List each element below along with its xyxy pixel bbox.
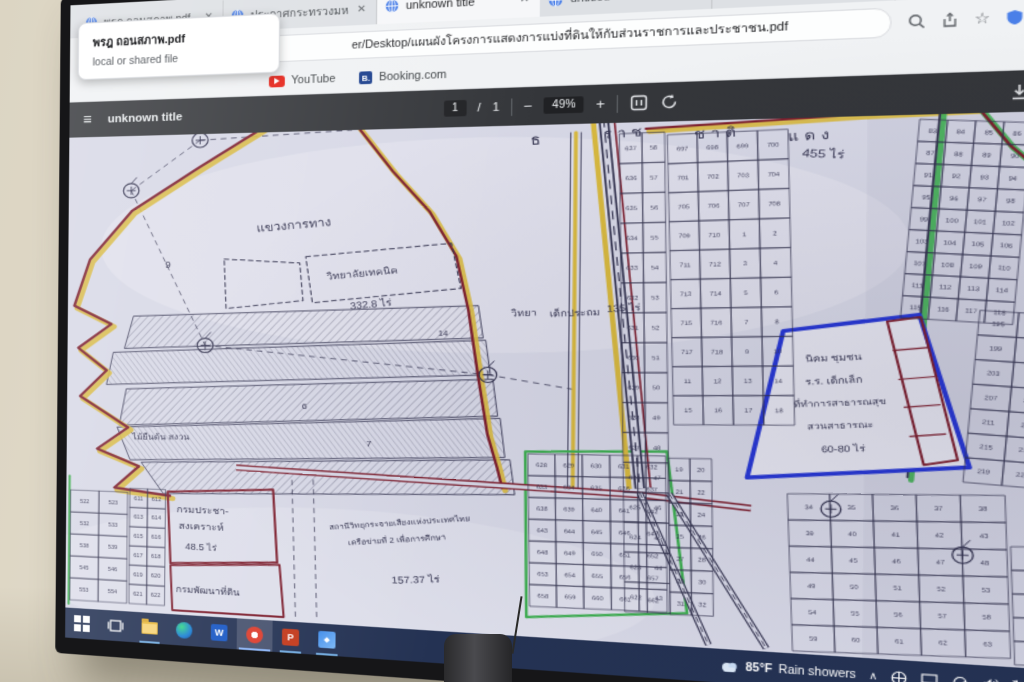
svg-text:87: 87 — [926, 150, 935, 157]
svg-text:55: 55 — [851, 611, 859, 618]
svg-text:101: 101 — [973, 219, 987, 226]
map-label: 157.37 ไร่ — [391, 573, 440, 585]
svg-text:629: 629 — [628, 385, 640, 391]
svg-text:22: 22 — [697, 490, 705, 497]
powerpoint-button[interactable]: P — [272, 621, 308, 655]
map-label: ชาติ — [694, 124, 742, 142]
svg-text:630: 630 — [627, 355, 639, 361]
svg-text:32: 32 — [698, 602, 706, 609]
hidden-icons-chevron[interactable]: ∧ — [869, 669, 878, 682]
svg-text:43: 43 — [979, 533, 988, 540]
svg-text:92: 92 — [952, 174, 961, 181]
svg-text:199: 199 — [989, 346, 1003, 354]
svg-text:701: 701 — [677, 175, 689, 182]
svg-text:19: 19 — [675, 467, 683, 474]
svg-text:61: 61 — [895, 639, 904, 646]
svg-text:46: 46 — [892, 559, 901, 566]
svg-text:546: 546 — [108, 567, 118, 573]
bookmark-label: Booking.com — [379, 68, 447, 83]
svg-text:640: 640 — [591, 508, 602, 515]
svg-text:89: 89 — [982, 152, 991, 159]
svg-text:44: 44 — [806, 557, 814, 564]
network-globe-icon[interactable] — [891, 669, 908, 682]
svg-text:656: 656 — [619, 575, 631, 582]
svg-text:631: 631 — [627, 325, 639, 331]
svg-text:47: 47 — [936, 560, 945, 567]
svg-text:545: 545 — [79, 565, 88, 571]
tab-title: unknown title — [406, 0, 511, 12]
svg-text:632: 632 — [646, 465, 658, 472]
svg-text:13: 13 — [744, 379, 752, 386]
language-indicator[interactable]: ไทย — [1014, 677, 1024, 682]
svg-text:710: 710 — [708, 232, 720, 239]
svg-text:93: 93 — [980, 175, 989, 182]
svg-text:11: 11 — [684, 379, 691, 385]
svg-text:634: 634 — [563, 485, 574, 492]
svg-text:713: 713 — [680, 292, 692, 299]
svg-text:58: 58 — [649, 145, 657, 152]
svg-text:699: 699 — [736, 143, 748, 150]
fit-page-icon[interactable] — [630, 94, 648, 111]
rotate-icon[interactable] — [660, 93, 678, 110]
svg-text:56: 56 — [894, 612, 903, 619]
photos-icon: ◆ — [318, 631, 335, 649]
svg-text:39: 39 — [806, 531, 814, 538]
svg-text:207: 207 — [984, 395, 998, 403]
svg-text:49: 49 — [653, 415, 661, 422]
svg-text:50: 50 — [850, 584, 858, 591]
map-label: เด็กประถม — [549, 305, 600, 319]
svg-text:215: 215 — [979, 444, 993, 452]
svg-text:703: 703 — [737, 173, 749, 180]
svg-text:613: 613 — [134, 515, 144, 521]
powerpoint-icon: P — [282, 628, 299, 646]
volume-icon[interactable] — [982, 677, 1000, 682]
tab-hover-card: พรฎ ถอนสภาพ.pdf local or shared file — [78, 13, 280, 80]
tab-hover-subtitle: local or shared file — [93, 49, 264, 68]
svg-text:83: 83 — [928, 128, 937, 135]
svg-text:704: 704 — [768, 172, 780, 179]
svg-text:5: 5 — [744, 290, 748, 297]
file-explorer-button[interactable] — [132, 612, 167, 645]
svg-text:648: 648 — [537, 550, 548, 557]
address-text: er/Desktop/แผนผังโครงการแสดงการแบ่งที่ดิ… — [352, 17, 788, 54]
map-label: ธ — [530, 132, 541, 148]
svg-text:84: 84 — [956, 129, 965, 136]
download-icon[interactable] — [1010, 83, 1024, 100]
svg-text:614: 614 — [151, 516, 161, 522]
svg-text:16: 16 — [714, 408, 722, 415]
svg-text:9: 9 — [745, 349, 749, 356]
svg-text:629: 629 — [563, 463, 574, 470]
svg-text:26: 26 — [698, 535, 706, 542]
svg-text:641: 641 — [618, 508, 630, 515]
svg-text:625: 625 — [629, 505, 641, 512]
map-label: 7 — [366, 439, 372, 449]
tab-close-icon[interactable]: ✕ — [355, 3, 369, 15]
svg-text:644: 644 — [564, 529, 575, 536]
svg-text:647: 647 — [647, 531, 659, 538]
svg-text:29: 29 — [677, 579, 685, 586]
bookmark-youtube[interactable]: YouTube — [269, 73, 336, 88]
svg-text:21: 21 — [675, 490, 683, 497]
svg-text:51: 51 — [652, 355, 660, 361]
svg-text:104: 104 — [943, 240, 956, 247]
svg-text:522: 522 — [80, 499, 89, 505]
svg-text:112: 112 — [939, 284, 952, 291]
display-tray-icon[interactable] — [921, 673, 938, 682]
svg-text:49: 49 — [807, 583, 815, 590]
svg-text:635: 635 — [591, 486, 602, 493]
map-label: 48.5 ไร่ — [185, 542, 217, 553]
svg-text:28: 28 — [698, 557, 706, 564]
stand-pole — [444, 634, 512, 682]
svg-text:56: 56 — [650, 205, 658, 212]
svg-text:15: 15 — [684, 408, 692, 414]
windows-desktop: พรฎ ถอนสภาพ.pdf✕ประกาศกระทรวงมหาดไทยเรื่… — [65, 0, 1024, 682]
svg-text:115: 115 — [909, 305, 922, 312]
svg-text:633: 633 — [626, 266, 638, 273]
svg-text:711: 711 — [679, 262, 690, 269]
tv-display: พรฎ ถอนสภาพ.pdf✕ประกาศกระทรวงมหาดไทยเรื่… — [55, 0, 1024, 682]
svg-text:57: 57 — [938, 613, 947, 620]
svg-text:626: 626 — [629, 475, 641, 482]
svg-text:1: 1 — [742, 232, 746, 239]
sync-tray-icon[interactable] — [952, 675, 970, 682]
svg-text:523: 523 — [108, 500, 118, 506]
svg-text:611: 611 — [134, 496, 143, 502]
word-icon: W — [211, 624, 228, 642]
svg-text:712: 712 — [709, 262, 721, 269]
search-icon[interactable] — [908, 12, 927, 29]
booking-icon: B. — [359, 71, 372, 84]
svg-text:615: 615 — [133, 534, 143, 540]
svg-text:18: 18 — [775, 408, 783, 415]
svg-text:718: 718 — [711, 349, 723, 356]
svg-text:54: 54 — [651, 265, 659, 272]
word-button[interactable]: W — [201, 616, 236, 649]
svg-text:51: 51 — [893, 585, 902, 592]
svg-text:109: 109 — [969, 264, 983, 271]
svg-text:702: 702 — [707, 174, 719, 181]
globe-favicon-icon — [548, 0, 563, 7]
svg-text:24: 24 — [697, 512, 705, 519]
pdf-title: unknown title — [108, 111, 183, 125]
svg-text:48: 48 — [653, 446, 661, 453]
map-label: ไม้ยืนต้น สงวน — [131, 432, 190, 442]
svg-text:659: 659 — [564, 595, 575, 602]
svg-text:717: 717 — [681, 350, 693, 357]
svg-text:55: 55 — [651, 235, 659, 242]
task-view-icon — [108, 618, 124, 633]
divider — [617, 95, 618, 113]
tab-close-icon[interactable]: ✕ — [517, 0, 531, 6]
map-label: ราช — [603, 124, 648, 142]
weather-cloud-icon — [719, 659, 739, 674]
svg-text:58: 58 — [982, 615, 991, 622]
svg-text:36: 36 — [890, 505, 899, 512]
svg-text:95: 95 — [921, 195, 930, 202]
svg-text:637: 637 — [646, 487, 658, 494]
svg-text:111: 111 — [911, 283, 923, 290]
svg-text:638: 638 — [536, 506, 547, 513]
svg-text:623: 623 — [630, 565, 642, 572]
svg-text:554: 554 — [108, 589, 118, 595]
svg-text:716: 716 — [710, 320, 722, 327]
svg-text:617: 617 — [133, 554, 143, 560]
svg-text:216: 216 — [1018, 447, 1024, 455]
svg-text:53: 53 — [651, 295, 659, 302]
windows-logo-icon — [74, 615, 89, 632]
svg-text:650: 650 — [591, 552, 602, 559]
pdf-page-zoom-controls: 1 / 1 − 49% + — [444, 93, 678, 118]
svg-text:50: 50 — [652, 385, 660, 391]
svg-text:628: 628 — [628, 415, 640, 422]
svg-text:634: 634 — [626, 236, 638, 243]
svg-text:637: 637 — [625, 146, 637, 153]
svg-text:34: 34 — [805, 505, 813, 512]
edge-button[interactable] — [167, 614, 202, 647]
file-explorer-icon — [142, 621, 158, 634]
svg-text:195: 195 — [991, 321, 1005, 329]
svg-text:700: 700 — [767, 142, 779, 149]
svg-text:52: 52 — [652, 325, 660, 331]
svg-text:655: 655 — [592, 574, 603, 581]
svg-text:30: 30 — [698, 580, 706, 587]
svg-text:2: 2 — [773, 231, 777, 238]
svg-text:38: 38 — [979, 506, 988, 513]
svg-text:85: 85 — [984, 130, 993, 137]
svg-text:212: 212 — [1020, 423, 1024, 431]
map-label: สวนสาธารณะ — [807, 420, 874, 432]
zoom-out-button[interactable]: − — [524, 98, 533, 115]
svg-text:211: 211 — [982, 420, 995, 428]
svg-text:662: 662 — [647, 598, 659, 605]
page-count: 1 — [492, 101, 499, 114]
svg-text:105: 105 — [971, 241, 985, 248]
svg-text:628: 628 — [536, 463, 547, 470]
svg-text:714: 714 — [710, 291, 722, 298]
svg-text:40: 40 — [848, 532, 856, 539]
svg-text:54: 54 — [808, 610, 816, 617]
weather-temp: 85°F — [745, 661, 772, 675]
bookmark-booking[interactable]: B. Booking.com — [359, 68, 446, 84]
svg-text:220: 220 — [1016, 472, 1024, 480]
chrome-button[interactable] — [237, 618, 273, 651]
globe-favicon-icon — [385, 0, 399, 13]
svg-text:643: 643 — [537, 528, 548, 535]
svg-text:96: 96 — [949, 196, 958, 203]
svg-text:622: 622 — [151, 593, 161, 599]
svg-text:62: 62 — [939, 640, 948, 647]
chrome-icon — [246, 626, 263, 644]
svg-text:612: 612 — [152, 497, 162, 503]
divider — [511, 98, 512, 115]
cadastral-map-svg: 6375863657635566345563354632536315263051… — [65, 108, 1024, 675]
svg-text:100: 100 — [945, 218, 958, 225]
svg-text:651: 651 — [619, 553, 631, 560]
svg-text:553: 553 — [79, 587, 88, 593]
svg-text:709: 709 — [678, 233, 690, 240]
svg-text:619: 619 — [133, 573, 143, 579]
svg-text:654: 654 — [564, 573, 575, 580]
weather-condition: Rain showers — [778, 663, 856, 681]
svg-text:715: 715 — [680, 321, 692, 328]
bookmark-star-icon[interactable]: ☆ — [974, 8, 990, 28]
svg-text:652: 652 — [647, 553, 659, 560]
svg-text:31: 31 — [677, 601, 685, 608]
svg-text:219: 219 — [977, 469, 991, 477]
svg-text:48: 48 — [980, 560, 989, 567]
svg-text:639: 639 — [563, 507, 574, 514]
svg-text:113: 113 — [967, 286, 980, 293]
map-label: 9 — [165, 260, 171, 270]
svg-text:35: 35 — [847, 505, 855, 512]
photos-button[interactable]: ◆ — [309, 623, 346, 657]
svg-text:658: 658 — [537, 593, 548, 600]
svg-text:94: 94 — [1008, 176, 1017, 183]
svg-text:102: 102 — [1001, 220, 1015, 227]
extension-shield-icon[interactable] — [1005, 8, 1024, 25]
map-label: 60-80 ไร่ — [821, 443, 867, 455]
svg-text:42: 42 — [935, 533, 944, 540]
svg-text:91: 91 — [924, 172, 933, 179]
svg-text:646: 646 — [619, 530, 631, 537]
tab-hover-title: พรฎ ถอนสภาพ.pdf — [93, 25, 264, 51]
svg-text:59: 59 — [809, 636, 817, 643]
svg-text:635: 635 — [626, 206, 638, 213]
page-separator: / — [477, 101, 481, 114]
svg-text:8: 8 — [775, 319, 779, 326]
svg-text:90: 90 — [1010, 153, 1019, 160]
svg-text:52: 52 — [937, 586, 946, 593]
svg-text:47: 47 — [653, 476, 661, 483]
svg-text:636: 636 — [618, 486, 630, 493]
svg-text:661: 661 — [619, 597, 631, 604]
svg-text:110: 110 — [997, 265, 1010, 272]
svg-text:697: 697 — [677, 146, 689, 153]
svg-text:107: 107 — [913, 261, 926, 268]
svg-text:705: 705 — [678, 204, 690, 211]
zoom-in-button[interactable]: + — [596, 96, 605, 113]
svg-text:627: 627 — [628, 445, 640, 452]
bookmark-label: YouTube — [291, 73, 335, 87]
svg-text:4: 4 — [774, 260, 778, 267]
svg-text:108: 108 — [941, 262, 954, 269]
svg-text:708: 708 — [768, 201, 780, 208]
zoom-level[interactable]: 49% — [544, 96, 584, 114]
svg-text:7: 7 — [744, 320, 748, 327]
map-label: แดง — [788, 126, 836, 144]
svg-text:60: 60 — [852, 637, 860, 644]
svg-text:63: 63 — [983, 642, 992, 649]
svg-text:645: 645 — [591, 530, 602, 537]
svg-text:88: 88 — [954, 151, 963, 158]
svg-text:633: 633 — [536, 484, 547, 491]
svg-text:532: 532 — [80, 521, 89, 527]
svg-text:12: 12 — [713, 379, 721, 386]
youtube-icon — [269, 75, 285, 87]
map-label: สงเคราะห์ — [179, 520, 224, 533]
svg-text:99: 99 — [919, 217, 928, 224]
svg-text:23: 23 — [676, 512, 684, 519]
svg-text:27: 27 — [676, 557, 684, 564]
svg-text:622: 622 — [630, 595, 642, 602]
svg-text:657: 657 — [647, 576, 659, 583]
share-icon[interactable] — [941, 11, 960, 28]
svg-text:630: 630 — [590, 464, 601, 471]
svg-text:14: 14 — [774, 378, 782, 385]
svg-text:642: 642 — [646, 509, 658, 516]
svg-text:98: 98 — [1006, 198, 1015, 205]
pdf-menu-icon[interactable]: ≡ — [83, 111, 92, 128]
svg-text:6: 6 — [774, 290, 778, 297]
svg-text:25: 25 — [676, 534, 684, 541]
svg-text:203: 203 — [986, 370, 1000, 378]
svg-text:533: 533 — [108, 522, 118, 528]
svg-text:106: 106 — [999, 243, 1013, 250]
svg-text:618: 618 — [151, 554, 161, 560]
weather-widget[interactable]: 85°F Rain showers — [719, 659, 856, 682]
svg-text:20: 20 — [697, 468, 705, 475]
pdf-action-icons: ⋮ — [1010, 78, 1024, 101]
svg-text:86: 86 — [1013, 131, 1022, 138]
svg-text:620: 620 — [151, 574, 161, 580]
svg-text:539: 539 — [108, 545, 118, 551]
edge-icon — [176, 622, 192, 639]
svg-text:37: 37 — [934, 506, 943, 513]
svg-text:57: 57 — [650, 175, 658, 182]
svg-text:117: 117 — [965, 308, 978, 315]
svg-text:653: 653 — [537, 572, 548, 579]
svg-text:636: 636 — [625, 176, 637, 183]
page-number-input[interactable]: 1 — [444, 100, 466, 117]
svg-text:538: 538 — [80, 543, 89, 549]
svg-text:116: 116 — [937, 306, 950, 313]
map-label: 6 — [302, 401, 308, 411]
svg-text:621: 621 — [133, 592, 143, 598]
svg-text:660: 660 — [592, 596, 603, 603]
svg-text:41: 41 — [891, 532, 900, 539]
svg-text:3: 3 — [743, 261, 747, 268]
svg-text:631: 631 — [618, 464, 630, 471]
svg-text:45: 45 — [849, 558, 857, 565]
svg-text:53: 53 — [981, 587, 990, 594]
start-button[interactable] — [65, 607, 99, 639]
task-view-button[interactable] — [99, 610, 133, 643]
map-label: 14 — [438, 328, 448, 337]
svg-text:17: 17 — [744, 408, 752, 415]
svg-text:44: 44 — [654, 566, 662, 573]
map-label: 135 ไร่ — [607, 302, 641, 314]
svg-text:616: 616 — [151, 535, 161, 541]
svg-text:624: 624 — [629, 535, 641, 542]
svg-text:698: 698 — [706, 145, 718, 152]
svg-text:97: 97 — [977, 197, 986, 204]
svg-text:114: 114 — [995, 287, 1008, 294]
svg-text:10: 10 — [774, 349, 782, 356]
map-label: วิทยา — [511, 307, 537, 318]
map-label: ร.ร. เด็กเล็ก — [805, 374, 863, 387]
svg-text:706: 706 — [708, 203, 720, 210]
svg-text:649: 649 — [564, 551, 575, 558]
pdf-page-map[interactable]: 6375863657635566345563354632536315263051… — [65, 108, 1024, 675]
svg-text:103: 103 — [915, 239, 928, 246]
tab-title: untitled — [570, 0, 680, 5]
toolbar-icons: ☆ ⋮ — [892, 2, 1024, 31]
svg-text:707: 707 — [738, 202, 750, 209]
